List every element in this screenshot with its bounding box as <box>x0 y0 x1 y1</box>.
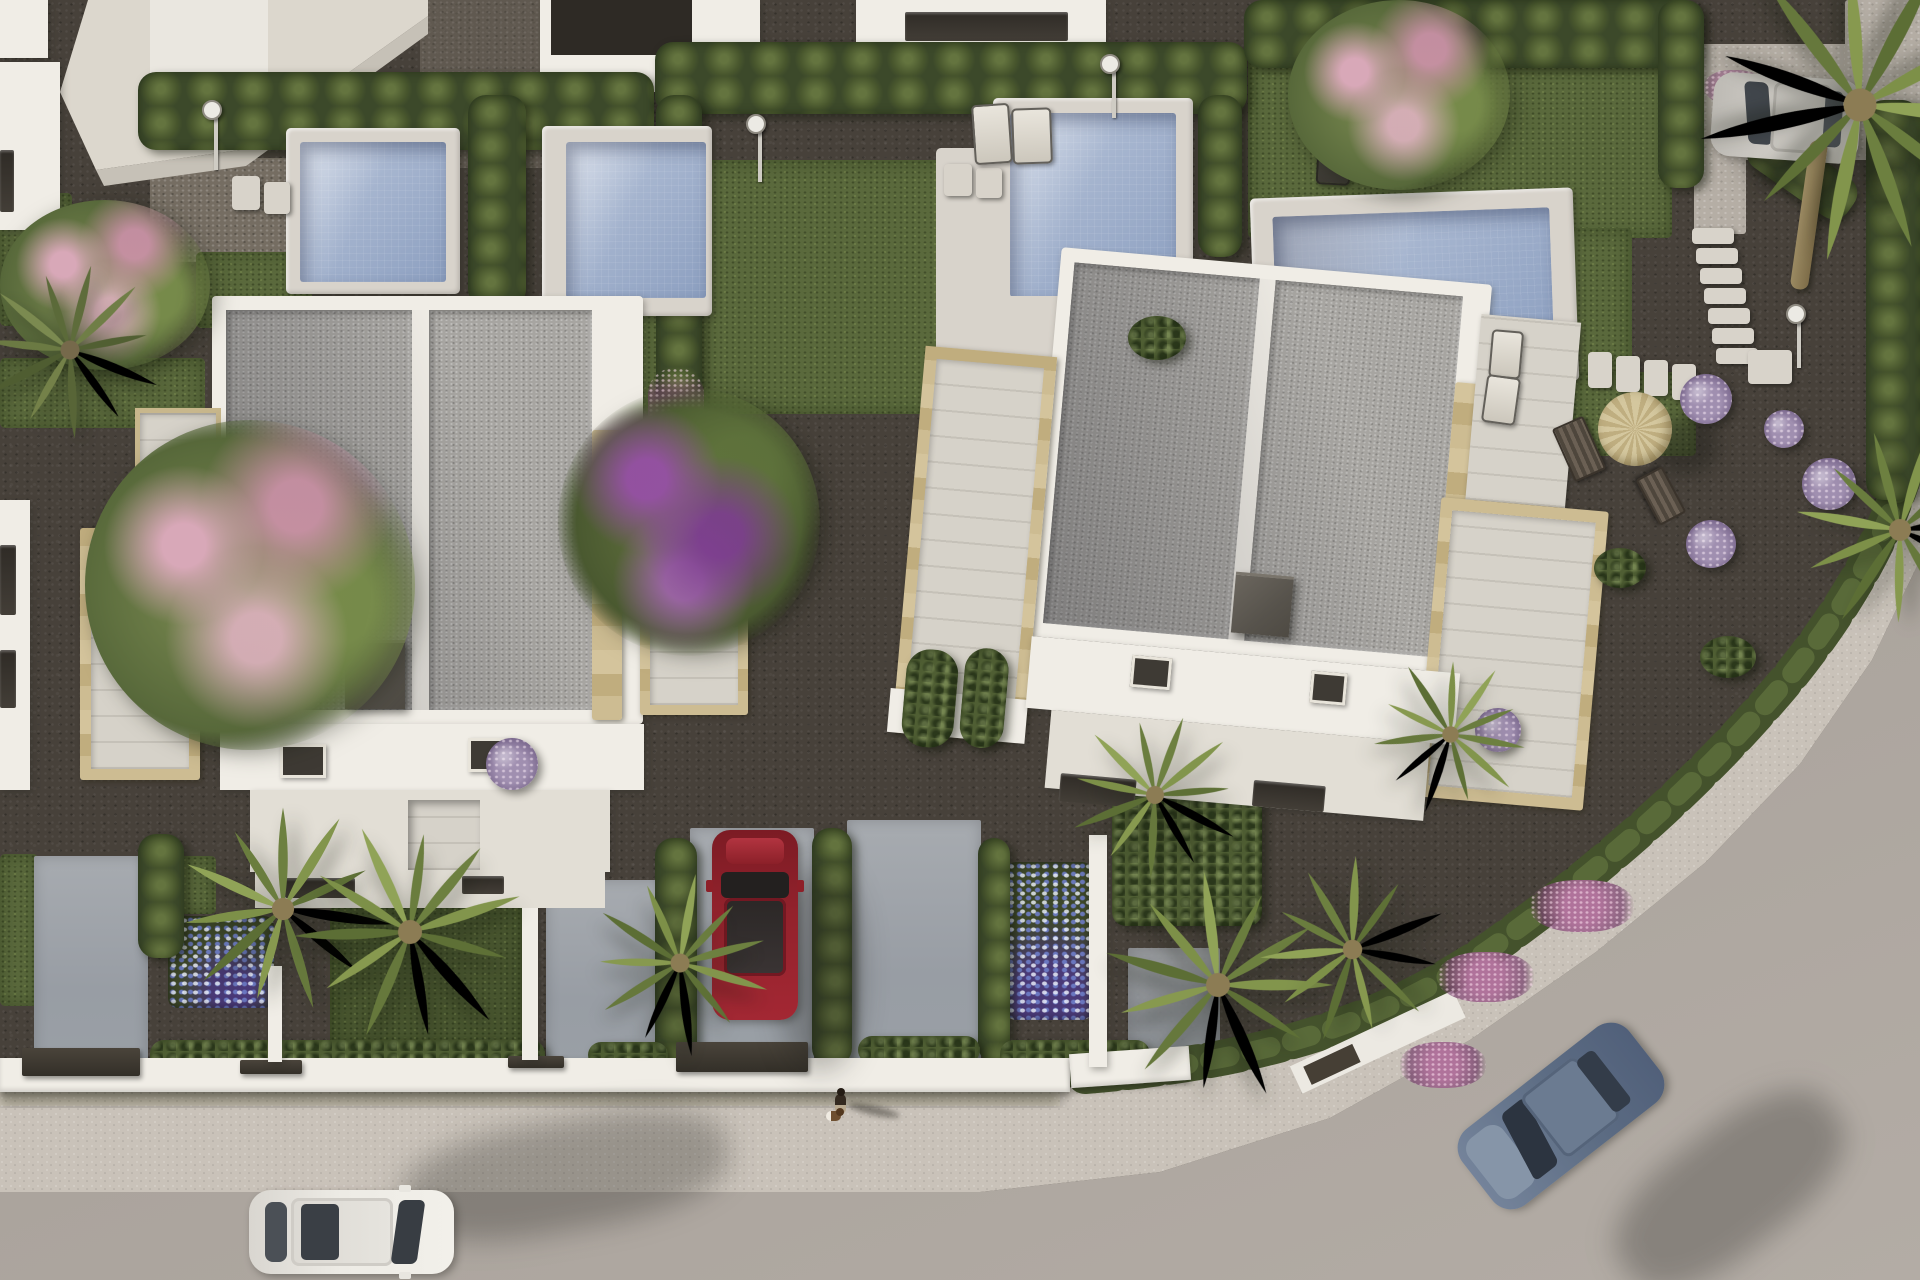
path-stone <box>1588 352 1612 388</box>
aerial-render: Top-down aerial 3D rendering of a modern… <box>0 0 1920 1280</box>
round-bush <box>1128 316 1186 360</box>
pool-1-coping <box>286 128 460 294</box>
dog <box>826 1108 844 1122</box>
stair-stone <box>1692 228 1734 244</box>
outdoor-shower-1 <box>202 100 222 120</box>
wall-shadow-on-sidewalk <box>0 1090 1060 1106</box>
dog-head <box>836 1108 844 1116</box>
stair-stone <box>1696 248 1738 264</box>
white-car-sunroof <box>301 1204 339 1260</box>
flower-patch-pink <box>1530 880 1634 932</box>
neighbor-far-left-window-1 <box>0 545 16 615</box>
sun-lounger-pool3-2 <box>1011 107 1053 164</box>
hedge-right-of-driveway-villa2 <box>978 838 1010 1062</box>
path-stone <box>1616 356 1640 392</box>
stone-landing <box>1748 350 1792 384</box>
pedestrian-head <box>837 1088 845 1096</box>
hedge-between-pools-1-2 <box>468 95 526 307</box>
outdoor-shower-pole-3 <box>1112 66 1116 118</box>
hedge-right-of-pool-3 <box>1198 95 1242 257</box>
outdoor-shower-3 <box>1100 54 1120 74</box>
villa-1-skylight-left <box>280 744 326 778</box>
villa-2-chimney <box>1231 572 1294 638</box>
pink-blossom-tree-top-right <box>1288 0 1510 190</box>
white-car <box>249 1190 454 1274</box>
flower-patch-purple <box>1400 1042 1486 1088</box>
villa-2-roof-lounger <box>1488 329 1524 380</box>
villa-2-courtyard-shrub-1 <box>900 647 960 749</box>
stair-stone <box>1704 288 1746 304</box>
villa-2-window-2 <box>1252 780 1326 812</box>
stepping-stone <box>976 168 1002 198</box>
neighbor-building-far-left <box>0 500 30 790</box>
bougainvillea-tree <box>558 388 820 656</box>
flower-shrub <box>1680 374 1732 424</box>
stepping-stone <box>232 176 260 210</box>
white-car-windshield <box>391 1200 426 1264</box>
neighbor-left-window <box>0 150 14 212</box>
straw-parasol <box>1598 392 1672 466</box>
stepping-stone <box>264 182 290 214</box>
pool-2-coping <box>542 126 712 316</box>
wall-cap-small-1 <box>240 1060 302 1074</box>
palm-tree-by-pergola <box>1355 639 1546 830</box>
neighbor-window-band-3 <box>905 12 1068 41</box>
sun-lounger-pool3-1 <box>971 103 1013 166</box>
stair-stone <box>1712 328 1754 344</box>
lounger-pool4-corner <box>1481 374 1521 426</box>
villa-2-skylight-left <box>1130 655 1173 690</box>
neighbor-far-left-window-2 <box>0 650 16 708</box>
outdoor-shower-2 <box>746 114 766 134</box>
pink-blossom-tree-large <box>85 420 415 750</box>
outdoor-shower-pole-2 <box>758 126 762 182</box>
flower-shrub <box>1686 520 1736 568</box>
stair-stone <box>1700 268 1742 284</box>
outdoor-shower-pole-1 <box>214 112 218 170</box>
pool-2-water <box>566 142 706 298</box>
stair-stone <box>1708 308 1750 324</box>
neighbor-building-left-top <box>0 0 48 58</box>
path-stone <box>1644 360 1668 396</box>
villa-2-skylight-right <box>1309 671 1348 706</box>
white-car-mirror-left <box>399 1185 411 1192</box>
red-car-mirror-right <box>797 880 804 892</box>
white-car-rear-window <box>265 1202 287 1262</box>
round-bush <box>1700 636 1756 678</box>
stepping-stone <box>944 164 972 196</box>
flower-shrub-gravel <box>486 738 538 790</box>
round-bush <box>1594 548 1646 588</box>
outdoor-shower-4 <box>1786 304 1806 324</box>
gate-cap-villa1-left <box>22 1048 140 1076</box>
pool-1-water <box>300 142 446 282</box>
white-car-mirror-right <box>399 1272 411 1279</box>
